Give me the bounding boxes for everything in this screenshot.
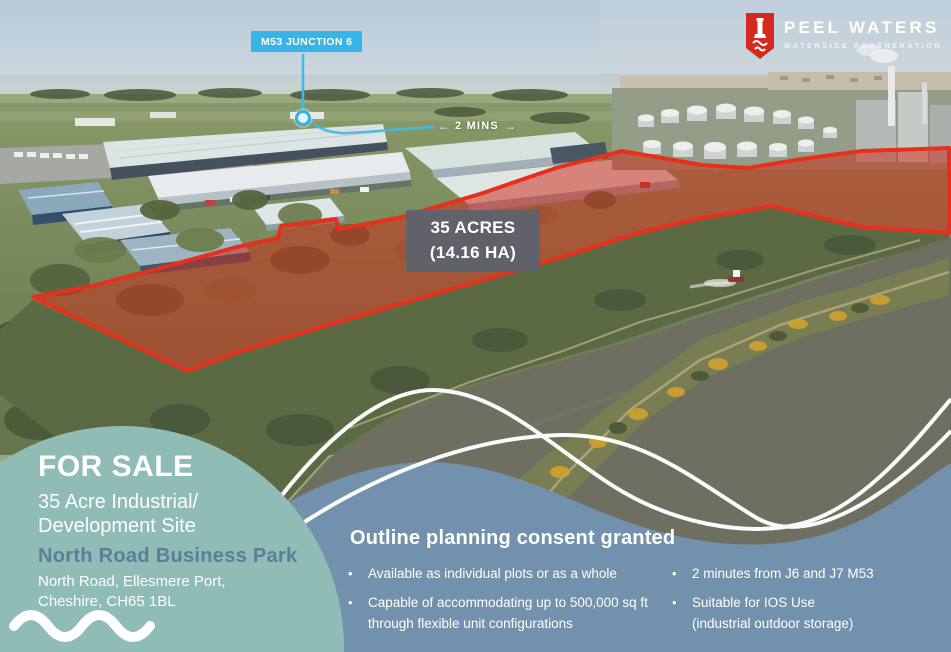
brand-name: PEEL WATERS [784, 18, 942, 38]
site-address-line1: North Road, Ellesmere Port, [38, 573, 226, 590]
route-arrow-left-icon: ← [438, 119, 450, 133]
bullet-icon: • [672, 593, 692, 634]
junction-marker [297, 112, 310, 125]
site-area-acres: 35 ACRES [406, 216, 540, 241]
travel-time-text: 2 MINS [455, 120, 499, 132]
list-item: • 2 minutes from J6 and J7 M53 [672, 564, 946, 584]
peel-waters-logo: PEEL WATERS WATERSIDE REGENERATION [745, 12, 942, 60]
brochure-page: PEEL WATERS WATERSIDE REGENERATION M53 J… [0, 0, 951, 652]
bullet-text: through flexible unit configurations [368, 616, 573, 631]
junction-label: M53 JUNCTION 6 [251, 31, 362, 52]
sale-subtitle-line1: 35 Acre Industrial/ [38, 492, 198, 512]
list-item: • Suitable for IOS Use (industrial outdo… [672, 593, 946, 634]
details-panel: Outline planning consent granted • Avail… [348, 527, 948, 643]
bullet-icon: • [348, 593, 368, 634]
bullet-text: 2 minutes from J6 and J7 M53 [692, 566, 874, 581]
bullet-icon: • [348, 564, 368, 584]
bullet-text: Capable of accommodating up to 500,000 s… [368, 595, 648, 610]
details-column-left: • Available as individual plots or as a … [348, 564, 672, 643]
list-item: • Available as individual plots or as a … [348, 564, 672, 584]
details-column-right: • 2 minutes from J6 and J7 M53 • Suitabl… [672, 564, 946, 643]
site-area-hectares: (14.16 HA) [406, 241, 540, 266]
bullet-text: Available as individual plots or as a wh… [368, 566, 617, 581]
sale-subtitle-line2: Development Site [38, 516, 196, 536]
travel-time-label: ← 2 MINS → [438, 119, 516, 133]
for-sale-title: FOR SALE [38, 450, 194, 484]
site-name: North Road Business Park [38, 545, 298, 568]
bullet-icon: • [672, 564, 692, 584]
route-arrow-right-icon: → [504, 119, 516, 133]
bullet-text: (industrial outdoor storage) [692, 616, 853, 631]
list-item: • Capable of accommodating up to 500,000… [348, 593, 672, 634]
peel-waters-shield-icon [745, 12, 775, 60]
bullet-text: Suitable for IOS Use [692, 595, 815, 610]
details-heading: Outline planning consent granted [350, 527, 948, 550]
site-area-label: 35 ACRES (14.16 HA) [406, 210, 540, 272]
site-address-line2: Cheshire, CH65 1BL [38, 593, 176, 610]
brand-tagline: WATERSIDE REGENERATION [784, 43, 942, 50]
chimney [888, 66, 895, 126]
